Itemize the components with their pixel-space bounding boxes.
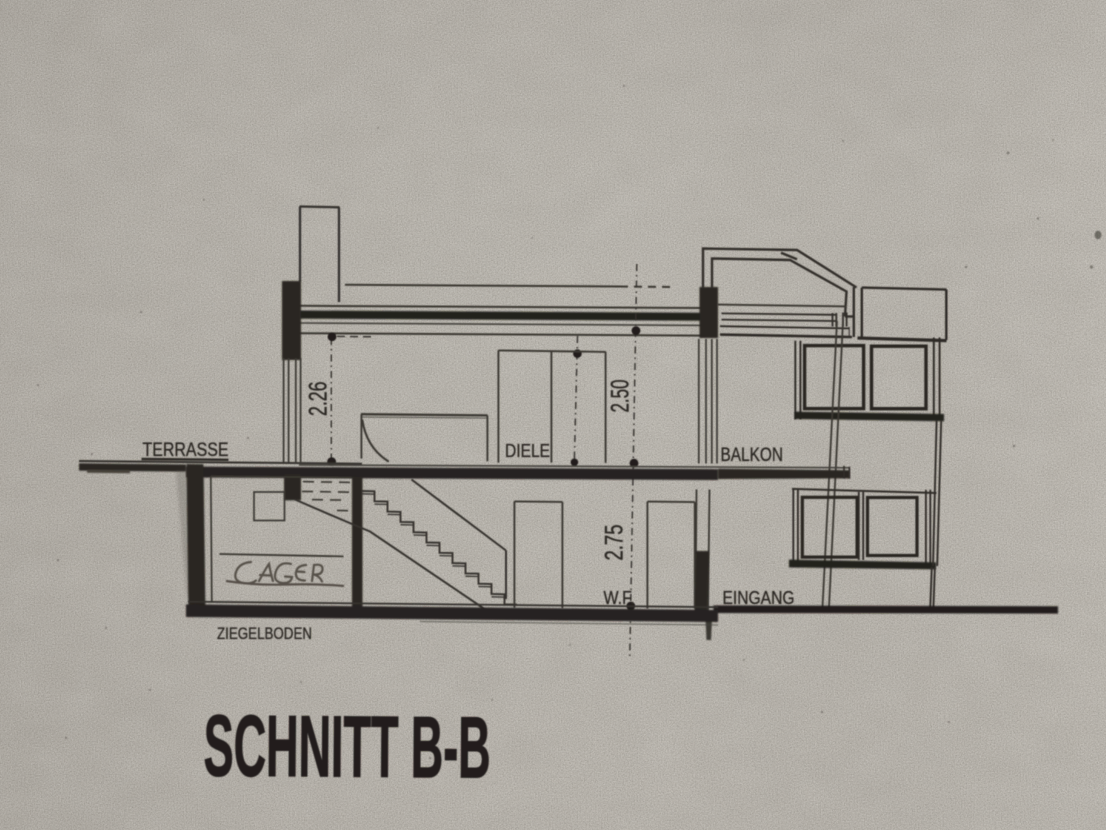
svg-text:ZIEGELBODEN: ZIEGELBODEN: [217, 624, 312, 643]
svg-text:2.50: 2.50: [606, 380, 634, 413]
svg-text:2.75: 2.75: [601, 525, 629, 561]
svg-text:SCHNITT B-B: SCHNITT B-B: [203, 697, 491, 796]
svg-text:BALKON: BALKON: [721, 444, 784, 466]
svg-text:EINGANG: EINGANG: [723, 587, 795, 608]
svg-text:2.26: 2.26: [305, 382, 333, 417]
svg-text:TERRASSE: TERRASSE: [143, 440, 229, 461]
svg-text:DIELE: DIELE: [505, 440, 550, 461]
svg-text:W.F.: W.F.: [604, 588, 635, 608]
